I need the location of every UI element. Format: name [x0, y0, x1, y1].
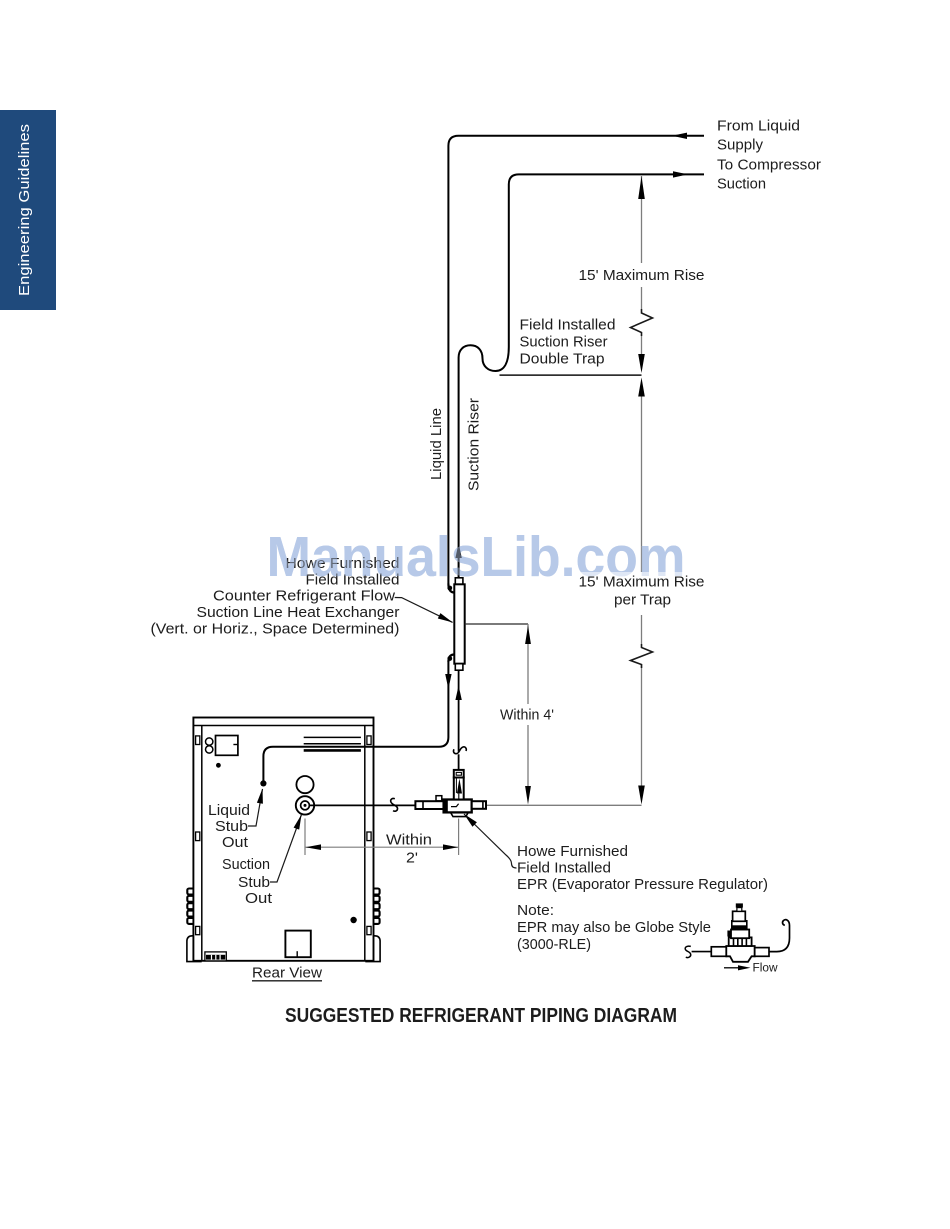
svg-text:Out: Out	[222, 834, 249, 851]
svg-text:Howe Furnished: Howe Furnished	[517, 843, 628, 860]
svg-text:Supply: Supply	[717, 137, 763, 154]
svg-text:EPR may also be Globe Style: EPR may also be Globe Style	[517, 919, 711, 936]
svg-text:Out: Out	[245, 890, 273, 907]
svg-text:Field Installed: Field Installed	[520, 317, 616, 334]
svg-text:From Liquid: From Liquid	[717, 118, 800, 135]
svg-text:Liquid Line: Liquid Line	[428, 408, 445, 480]
svg-text:Within: Within	[386, 832, 432, 849]
svg-text:Counter Refrigerant Flow: Counter Refrigerant Flow	[213, 588, 395, 605]
svg-text:Stub: Stub	[215, 818, 248, 835]
svg-text:Suction: Suction	[717, 176, 766, 193]
svg-text:Stub: Stub	[238, 874, 270, 891]
svg-text:Double Trap: Double Trap	[520, 351, 605, 368]
svg-text:Within 4': Within 4'	[500, 707, 554, 724]
svg-text:2': 2'	[406, 850, 418, 867]
svg-text:EPR (Evaporator Pressure Regul: EPR (Evaporator Pressure Regulator)	[517, 876, 768, 893]
svg-text:Suction Riser: Suction Riser	[466, 398, 483, 491]
svg-text:(3000-RLE): (3000-RLE)	[517, 936, 591, 953]
svg-text:Note:: Note:	[517, 902, 554, 919]
svg-text:SUGGESTED REFRIGERANT PIPING D: SUGGESTED REFRIGERANT PIPING DIAGRAM	[285, 1005, 677, 1027]
svg-text:ManualsLib.com: ManualsLib.com	[267, 525, 686, 589]
svg-text:Liquid: Liquid	[208, 802, 250, 819]
svg-text:(Vert. or Horiz., Space Determ: (Vert. or Horiz., Space Determined)	[151, 620, 400, 637]
svg-text:Suction Riser: Suction Riser	[520, 334, 608, 351]
svg-text:Field Installed: Field Installed	[517, 860, 611, 877]
svg-text:Suction Line Heat Exchanger: Suction Line Heat Exchanger	[197, 604, 400, 621]
svg-text:15' Maximum Rise: 15' Maximum Rise	[579, 267, 705, 284]
svg-text:Flow: Flow	[753, 963, 779, 975]
svg-text:Rear View: Rear View	[252, 966, 323, 982]
svg-text:To Compressor: To Compressor	[717, 157, 821, 174]
svg-text:Engineering Guidelines: Engineering Guidelines	[17, 124, 33, 296]
svg-text:Suction: Suction	[222, 856, 270, 873]
svg-text:per Trap: per Trap	[614, 592, 671, 609]
